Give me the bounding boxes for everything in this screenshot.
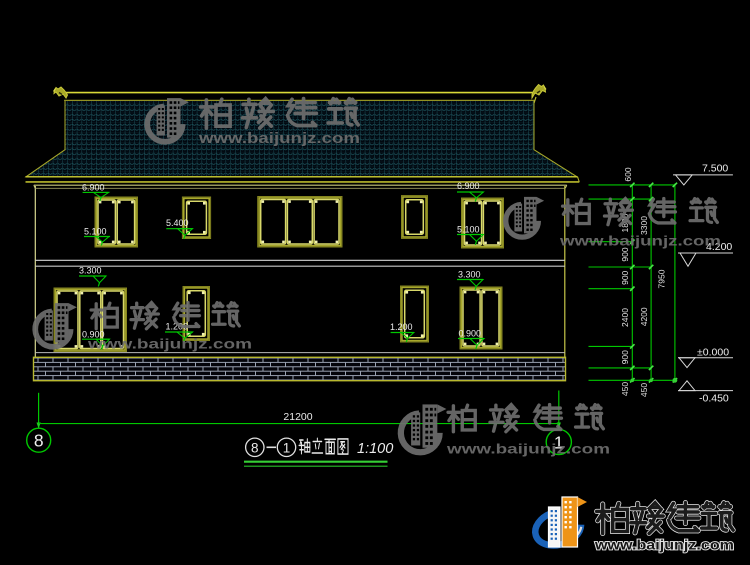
svg-text:6.900: 6.900 [82,183,105,193]
svg-text:3.300: 3.300 [79,266,102,276]
svg-text:-0.450: -0.450 [699,393,729,405]
svg-text:1.200: 1.200 [390,322,413,332]
svg-text:900: 900 [620,270,630,284]
svg-text:7950: 7950 [657,269,667,288]
svg-text:7.500: 7.500 [702,163,728,175]
svg-text:900: 900 [620,350,630,364]
svg-text:4200: 4200 [639,307,649,326]
svg-text:600: 600 [623,167,633,181]
svg-text:www.baijunjz.com: www.baijunjz.com [594,538,734,553]
svg-text:6.900: 6.900 [457,181,480,191]
svg-text:450: 450 [639,383,649,397]
svg-text:900: 900 [620,247,630,261]
svg-text:8: 8 [34,431,44,451]
svg-text:www.baijunjz.com: www.baijunjz.com [446,441,610,457]
svg-text:www.baijunjz.com: www.baijunjz.com [559,233,721,249]
svg-text:5.400: 5.400 [166,218,189,228]
svg-text:2400: 2400 [620,308,630,327]
svg-text:1: 1 [283,440,291,455]
svg-text:5.100: 5.100 [84,227,107,237]
svg-text:8: 8 [251,440,259,455]
svg-text:3.300: 3.300 [458,270,481,280]
svg-text:±0.000: ±0.000 [697,347,729,359]
svg-text:www.baijunjz.com: www.baijunjz.com [87,336,252,352]
svg-text:21200: 21200 [283,411,312,423]
svg-text:0.900: 0.900 [459,329,482,339]
svg-text:5.100: 5.100 [457,225,480,235]
svg-text:450: 450 [620,382,630,396]
svg-text:www.baijunjz.com: www.baijunjz.com [198,130,360,147]
svg-text:1:100: 1:100 [357,441,393,457]
